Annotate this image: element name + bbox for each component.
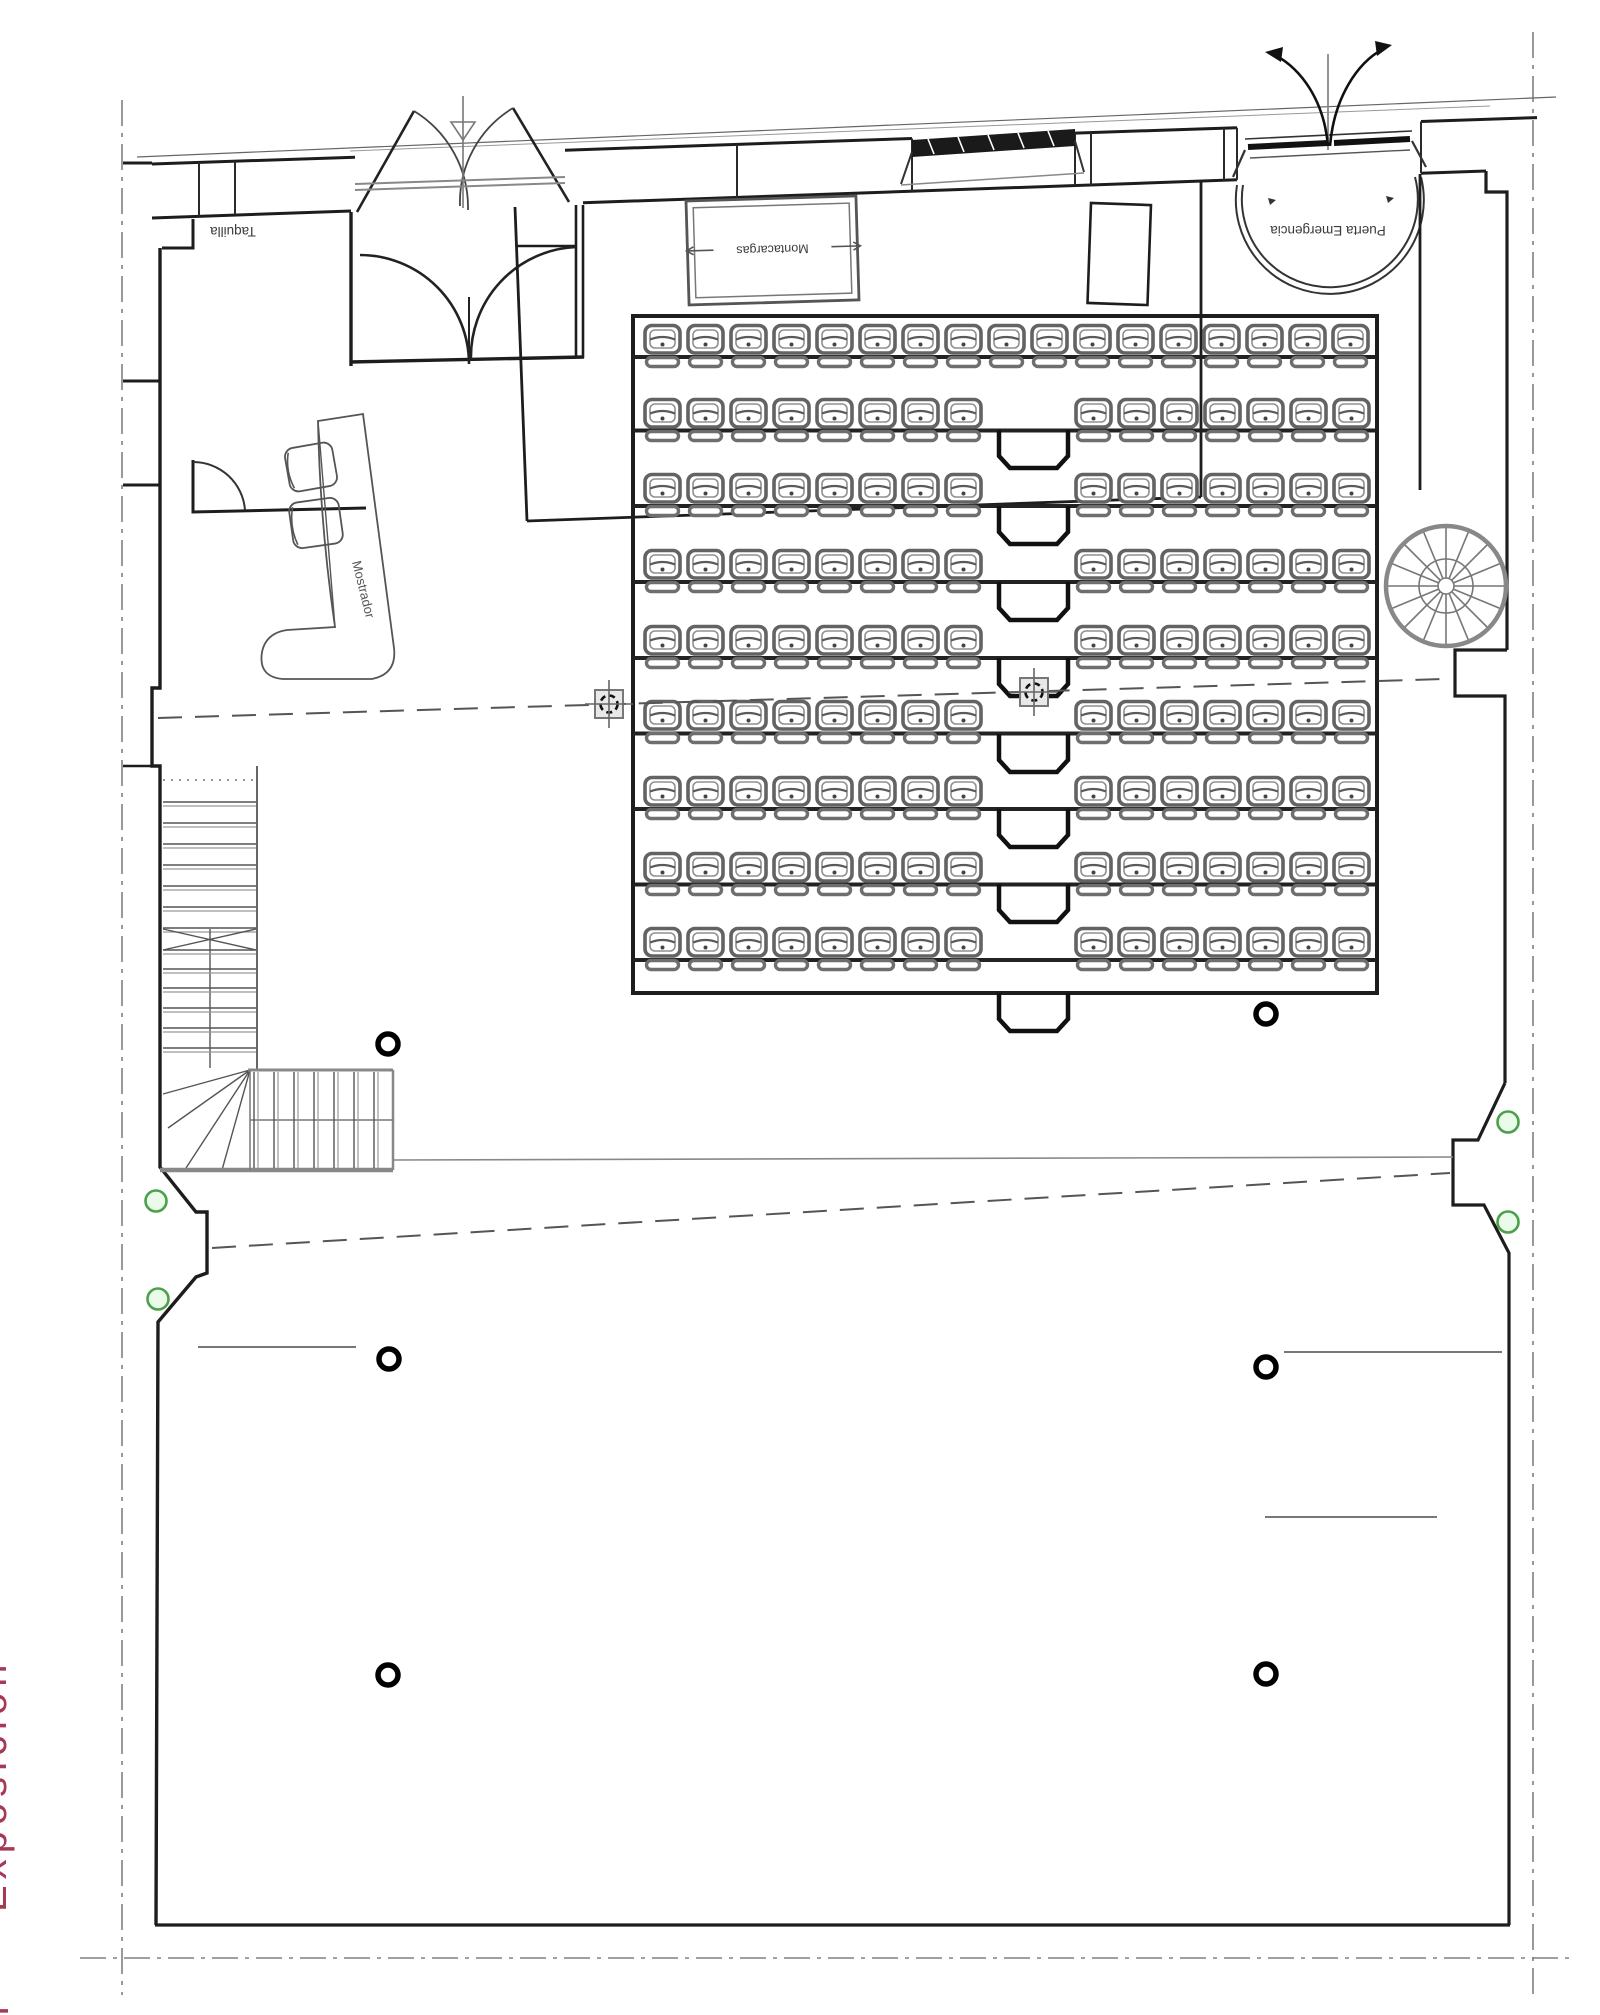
svg-text:Puerta Emergencia: Puerta Emergencia xyxy=(1270,223,1386,238)
svg-text:Taquilla: Taquilla xyxy=(210,224,256,239)
svg-text:Exposición: Exposición xyxy=(0,1659,15,1912)
svg-text:Pl: Pl xyxy=(0,2006,17,2015)
svg-text:Montacargas: Montacargas xyxy=(736,241,809,257)
